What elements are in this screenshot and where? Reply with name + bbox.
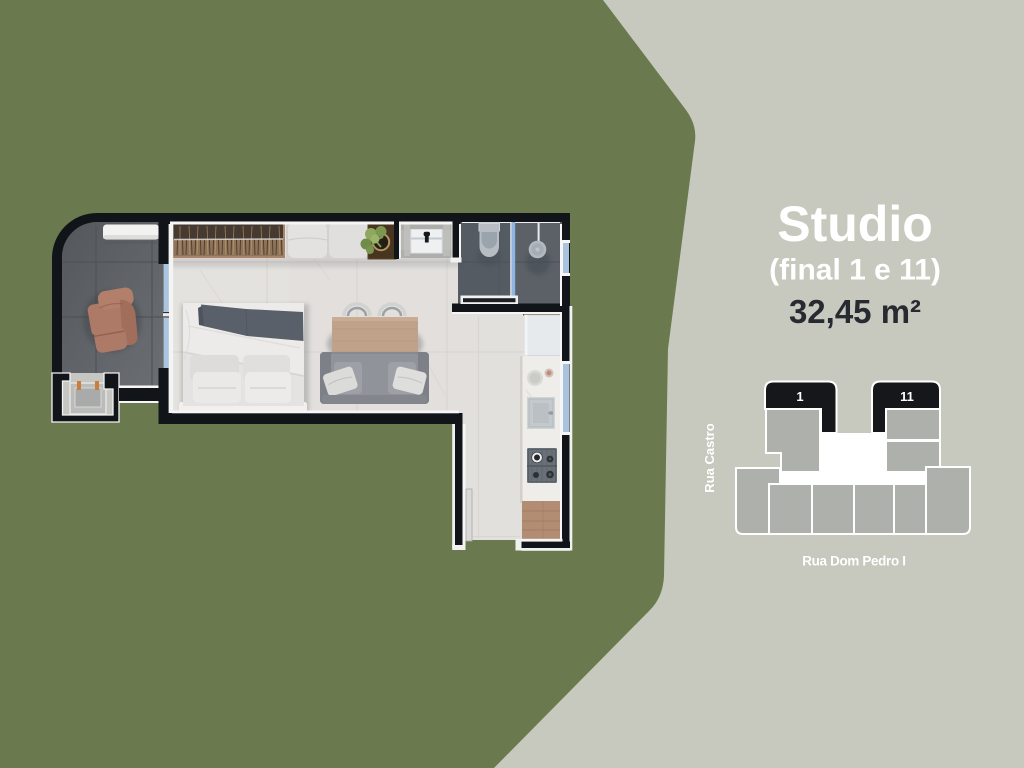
svg-text:32,45 m²: 32,45 m² [789, 293, 921, 330]
svg-text:(final 1 e 11): (final 1 e 11) [769, 254, 941, 287]
svg-text:11: 11 [900, 389, 914, 404]
svg-text:1: 1 [796, 389, 803, 404]
svg-text:Rua Castro: Rua Castro [702, 423, 717, 492]
svg-text:Studio: Studio [777, 196, 933, 252]
svg-text:Rua Dom Pedro I: Rua Dom Pedro I [802, 554, 905, 569]
